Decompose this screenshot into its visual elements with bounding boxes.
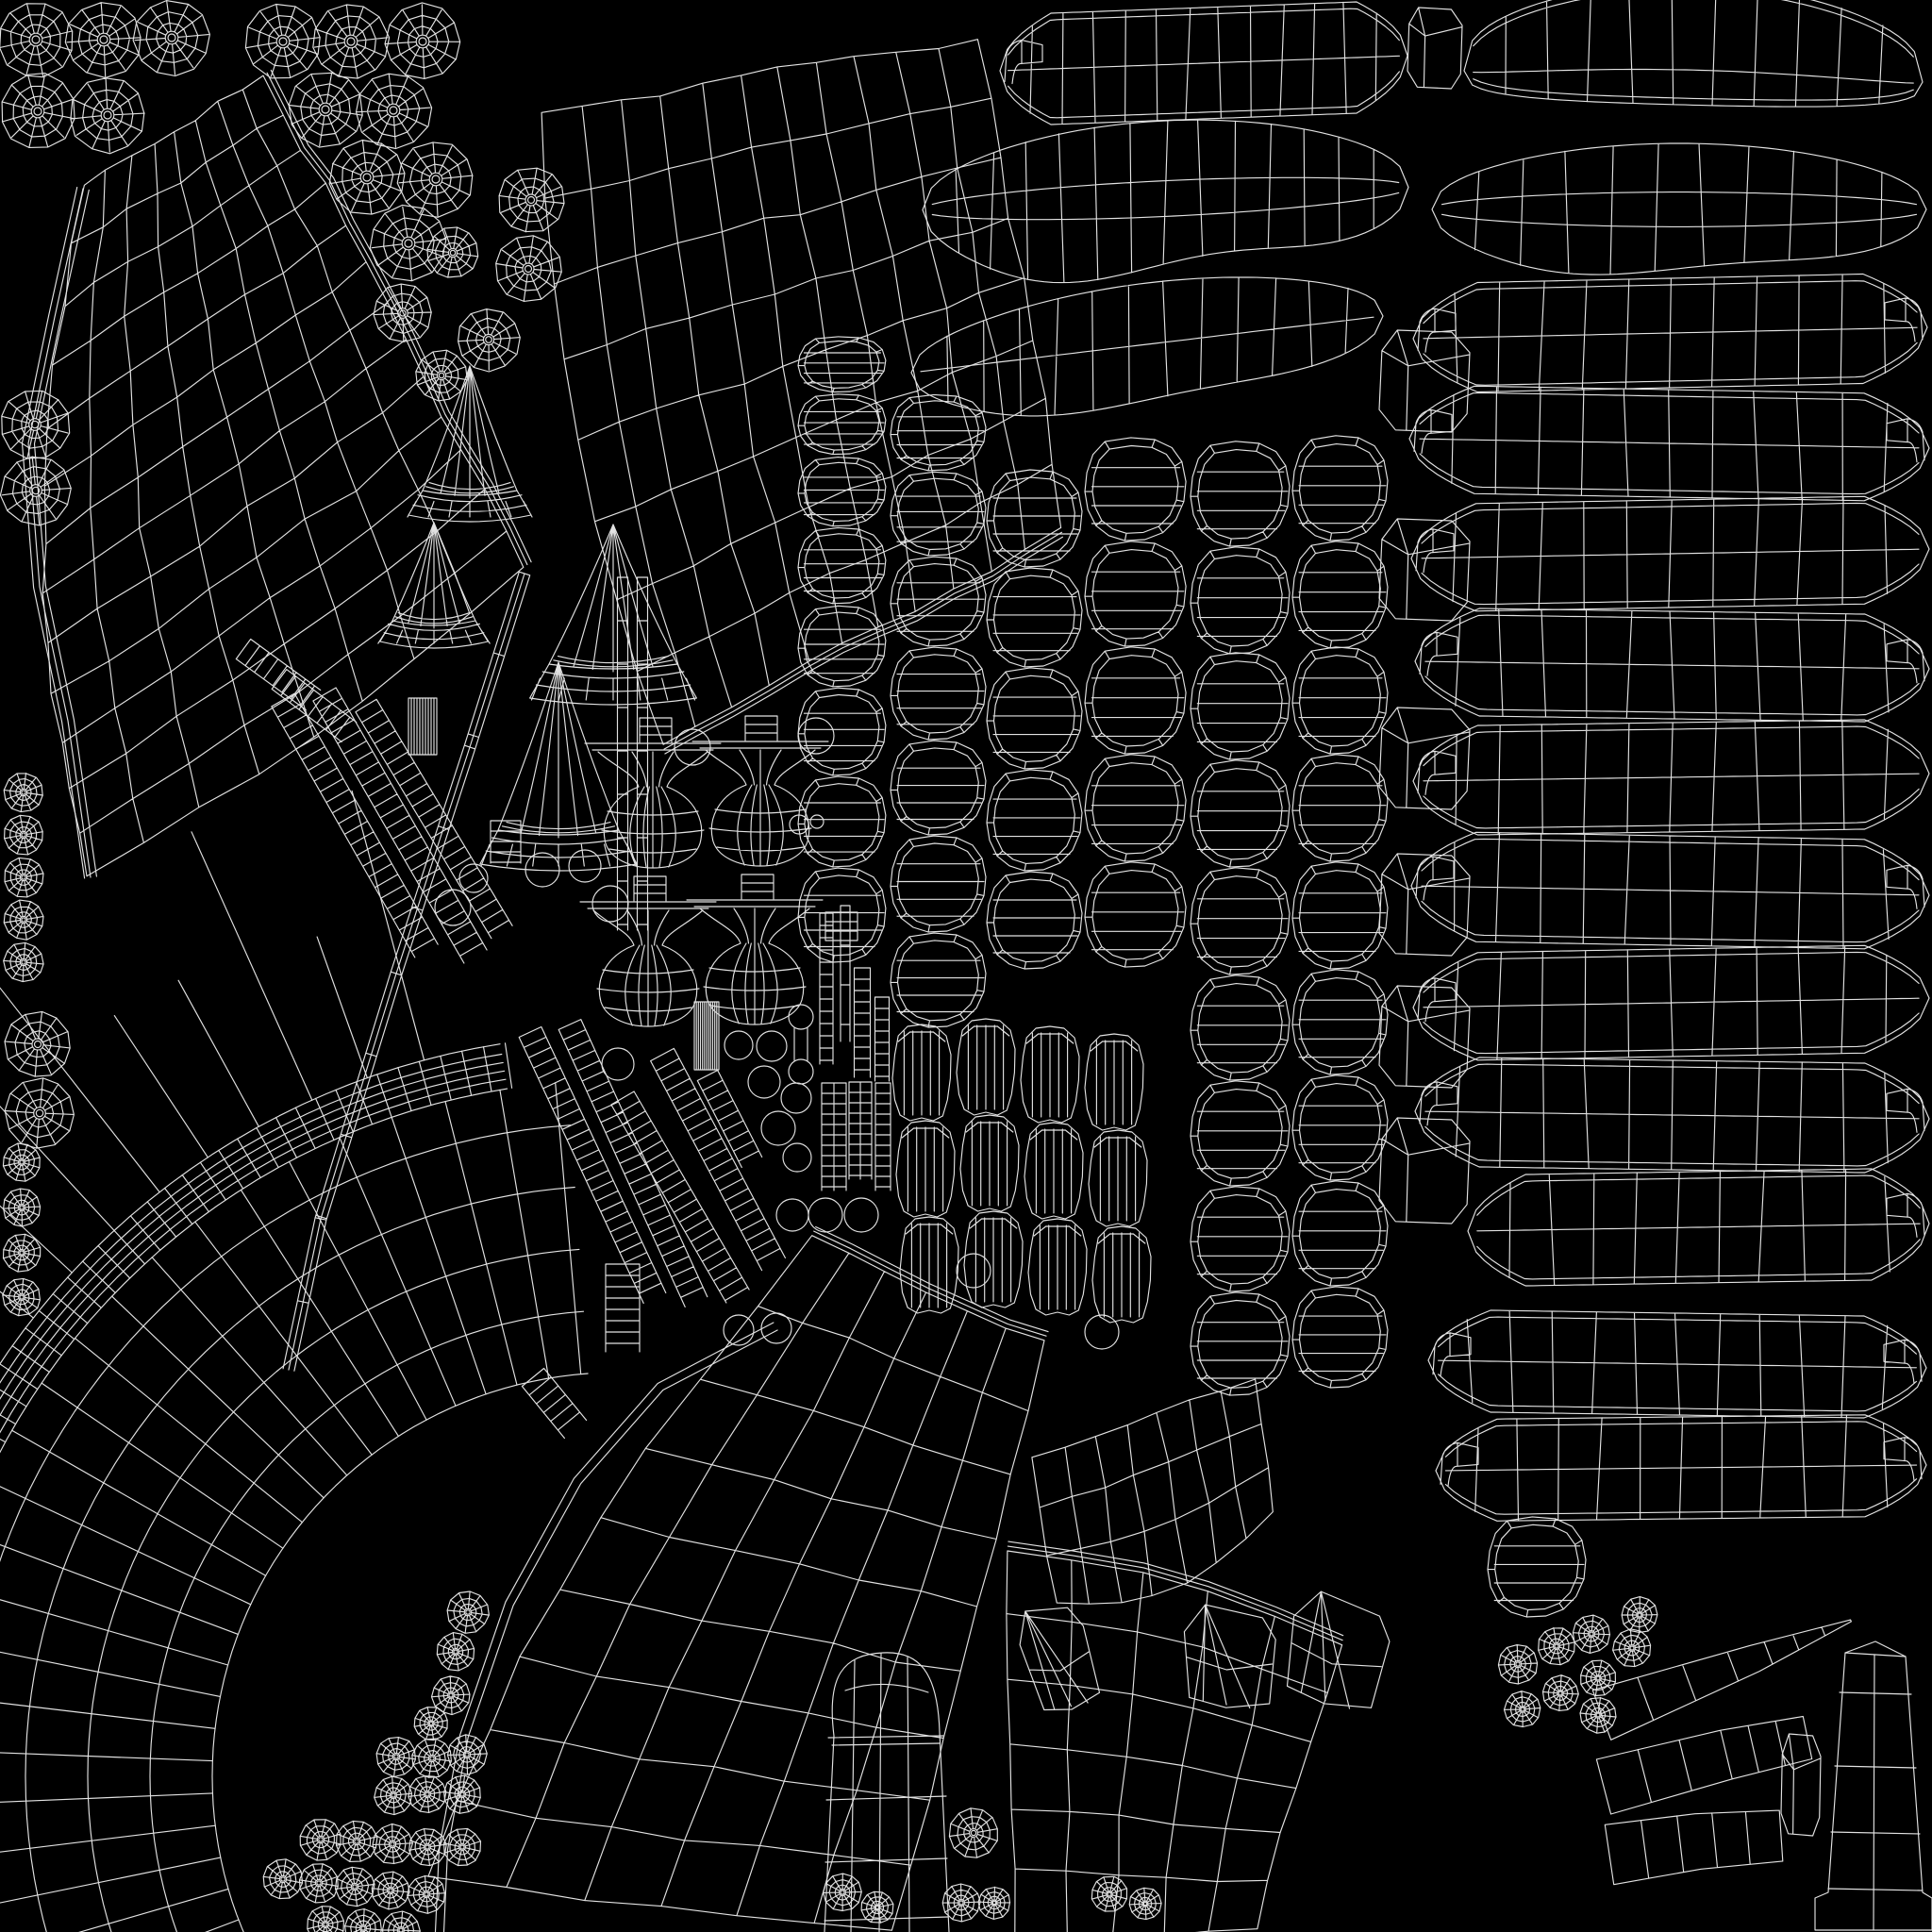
wire-path bbox=[345, 1909, 382, 1932]
facet-box-group bbox=[1379, 8, 1821, 1836]
wire-path bbox=[891, 557, 986, 646]
wire-path bbox=[891, 836, 986, 932]
uv-wireframe-canvas bbox=[0, 0, 1932, 1932]
strip-group bbox=[911, 0, 1929, 1521]
wire-path bbox=[23, 188, 808, 1932]
wire-path bbox=[382, 1911, 420, 1932]
obelisk bbox=[1815, 1641, 1932, 1930]
wire-path bbox=[798, 868, 886, 962]
wire-path bbox=[313, 5, 390, 78]
wire-path bbox=[1415, 1058, 1929, 1173]
wire-path bbox=[245, 5, 320, 78]
wire-path bbox=[987, 872, 1082, 969]
wire-path bbox=[0, 4, 73, 77]
wire-path bbox=[4, 942, 43, 981]
wire-path bbox=[1085, 862, 1186, 967]
wire-path bbox=[3, 1278, 41, 1315]
wire-path bbox=[1085, 755, 1186, 861]
wire-path bbox=[1413, 275, 1927, 392]
wire-path bbox=[357, 74, 432, 148]
wire-path bbox=[1505, 1691, 1541, 1727]
wire-path bbox=[987, 568, 1082, 667]
wire-path bbox=[1288, 1591, 1390, 1708]
wire-path bbox=[891, 933, 986, 1027]
wire-path bbox=[964, 1211, 1023, 1307]
wire-path bbox=[1184, 1605, 1275, 1707]
wire-path bbox=[412, 1739, 452, 1777]
wire-path bbox=[71, 78, 144, 154]
wire-path bbox=[2, 74, 75, 148]
wire-path bbox=[1085, 647, 1186, 754]
wire-path bbox=[1498, 1644, 1537, 1684]
wire-path bbox=[336, 1867, 375, 1906]
wire-path bbox=[5, 858, 43, 897]
wire-path bbox=[373, 1824, 412, 1863]
wire-path bbox=[1292, 755, 1388, 861]
wire-path bbox=[414, 1707, 447, 1740]
wire-path bbox=[408, 1776, 446, 1813]
wire-path bbox=[1411, 832, 1929, 949]
wire-path bbox=[940, 1732, 949, 1932]
wire-path bbox=[3, 1189, 40, 1226]
wire-path bbox=[1581, 1660, 1616, 1695]
wire-path bbox=[923, 120, 1408, 282]
mesh-bottommiddle bbox=[428, 1227, 1048, 1931]
wire-path bbox=[987, 770, 1082, 871]
wire-path bbox=[541, 40, 1061, 745]
wire-path bbox=[1413, 720, 1929, 835]
wire-path bbox=[267, 70, 531, 564]
wire-path bbox=[4, 774, 42, 812]
wire-path bbox=[5, 1011, 70, 1076]
wire-path bbox=[1191, 547, 1290, 654]
wire-path bbox=[1622, 1597, 1657, 1633]
wire-path bbox=[1835, 1766, 1916, 1768]
wire-path bbox=[978, 1887, 1010, 1919]
wire-path bbox=[1488, 1517, 1586, 1617]
wire-path bbox=[1292, 1287, 1388, 1388]
wire-path bbox=[428, 1236, 1044, 1931]
wire-path bbox=[1292, 647, 1388, 754]
wire-path bbox=[496, 236, 562, 302]
wire-path bbox=[911, 277, 1383, 416]
mesh-bottomright bbox=[1007, 1541, 1343, 1932]
wire-path bbox=[4, 1234, 41, 1272]
wire-path bbox=[1415, 608, 1929, 722]
wire-path bbox=[798, 606, 886, 687]
wire-path bbox=[1292, 1075, 1388, 1180]
wire-path bbox=[1580, 1698, 1616, 1734]
wire-path bbox=[851, 1660, 855, 1932]
wire-path bbox=[798, 688, 886, 775]
wire-path bbox=[891, 394, 986, 470]
wire-path bbox=[263, 1859, 302, 1899]
wire-path bbox=[891, 647, 986, 740]
wire-path bbox=[798, 527, 886, 603]
wire-path bbox=[372, 1872, 409, 1909]
wire-path bbox=[1542, 1675, 1578, 1711]
wire-path bbox=[960, 1115, 1019, 1211]
wire-path bbox=[949, 1808, 997, 1857]
wire-path bbox=[824, 1874, 862, 1911]
uv-texture-sheet bbox=[0, 0, 1932, 1932]
wire-path bbox=[5, 815, 43, 855]
wire-path bbox=[1592, 1620, 1851, 1885]
wire-path bbox=[1292, 541, 1388, 648]
wire-path bbox=[409, 1829, 447, 1866]
wire-path bbox=[1831, 1832, 1920, 1834]
wire-path bbox=[1085, 541, 1186, 646]
wire-path bbox=[300, 1820, 341, 1860]
wire-path bbox=[408, 1876, 445, 1914]
wire-path bbox=[1191, 1187, 1290, 1291]
wire-path bbox=[385, 3, 460, 79]
wire-path bbox=[427, 227, 478, 277]
wire-path bbox=[824, 1736, 834, 1932]
wire-path bbox=[1292, 436, 1388, 541]
wire-path bbox=[300, 1864, 339, 1903]
wire-path bbox=[1613, 1629, 1651, 1667]
wire-path bbox=[308, 1907, 344, 1932]
wire-path bbox=[1436, 1415, 1926, 1522]
wire-path bbox=[1464, 0, 1923, 107]
wire-path bbox=[1292, 1181, 1388, 1286]
wire-path bbox=[1085, 1034, 1143, 1130]
wire-path bbox=[896, 1121, 955, 1217]
edge-band-group bbox=[23, 188, 808, 1932]
wire-path bbox=[447, 1591, 489, 1633]
wire-path bbox=[444, 1828, 481, 1865]
wire-path bbox=[1191, 653, 1290, 759]
wire-path bbox=[828, 1736, 943, 1738]
wire-path bbox=[1292, 862, 1388, 969]
wire-path bbox=[1092, 1226, 1151, 1323]
wire-path bbox=[891, 741, 986, 835]
wire-path bbox=[2, 391, 70, 458]
wire-path bbox=[1840, 1692, 1911, 1694]
wire-path bbox=[1468, 1169, 1929, 1286]
wire-path bbox=[1428, 1310, 1926, 1418]
wire-path bbox=[814, 1227, 1048, 1337]
wire-path bbox=[687, 900, 823, 1024]
wire-path bbox=[378, 523, 490, 648]
wire-path bbox=[289, 73, 362, 147]
wire-path bbox=[1539, 1628, 1575, 1665]
wire-path bbox=[1292, 970, 1388, 1074]
wire-path bbox=[133, 1, 209, 76]
wire-path bbox=[987, 668, 1082, 769]
wire-path bbox=[900, 1217, 958, 1313]
wire-path bbox=[957, 1019, 1015, 1115]
wire-path bbox=[0, 457, 71, 525]
wire-path bbox=[664, 532, 1062, 754]
hatched-scale-grid bbox=[892, 1019, 1151, 1323]
wire-path bbox=[499, 168, 564, 232]
wire-path bbox=[1021, 1026, 1079, 1123]
spike-cone-group bbox=[378, 366, 697, 871]
wire-path bbox=[1091, 1876, 1126, 1911]
wire-path bbox=[4, 900, 43, 940]
wire-path bbox=[1874, 1655, 1874, 1930]
wire-path bbox=[832, 1743, 940, 1745]
wire-path bbox=[1191, 1081, 1290, 1186]
wire-path bbox=[861, 1891, 893, 1923]
wire-path bbox=[65, 3, 141, 78]
wire-path bbox=[1411, 496, 1929, 611]
wire-path bbox=[1828, 1889, 1923, 1890]
wire-path bbox=[432, 1676, 471, 1715]
wire-path bbox=[1432, 143, 1926, 275]
wire-path bbox=[1024, 1123, 1083, 1219]
wire-path bbox=[5, 1078, 74, 1148]
wire-path bbox=[337, 1821, 378, 1861]
wire-path bbox=[892, 1024, 951, 1121]
wire-path bbox=[1413, 945, 1929, 1060]
wire-path bbox=[1085, 438, 1186, 541]
wire-path bbox=[908, 1657, 909, 1932]
wire-path bbox=[1000, 2, 1407, 125]
wire-path bbox=[458, 309, 521, 372]
wire-path bbox=[1191, 868, 1290, 974]
wire-path bbox=[408, 366, 532, 522]
wire-path bbox=[798, 337, 886, 392]
wire-path bbox=[1191, 441, 1290, 546]
wire-path bbox=[1409, 386, 1929, 501]
wire-path bbox=[1191, 1292, 1290, 1395]
tooth-scale-grid bbox=[798, 337, 1586, 1617]
radial-fan bbox=[0, 791, 588, 1932]
chevron-band-group bbox=[1592, 1620, 1851, 1885]
wire-path bbox=[1573, 1615, 1609, 1653]
wire-path bbox=[3, 1143, 40, 1181]
wire-path bbox=[987, 470, 1082, 567]
wire-path bbox=[437, 1633, 474, 1671]
wire-path bbox=[1020, 1607, 1099, 1709]
wire-path bbox=[42, 75, 524, 876]
wire-path bbox=[1379, 8, 1821, 1836]
wire-path bbox=[376, 1738, 415, 1777]
wire-path bbox=[1028, 1219, 1087, 1315]
wire-path bbox=[798, 776, 886, 867]
wire-path bbox=[1129, 1888, 1161, 1919]
wire-path bbox=[1191, 975, 1290, 1080]
fan-wedge-group bbox=[1020, 1591, 1390, 1709]
wire-path bbox=[375, 1776, 412, 1815]
wire-path bbox=[1089, 1130, 1147, 1226]
wire-path bbox=[1191, 760, 1290, 867]
